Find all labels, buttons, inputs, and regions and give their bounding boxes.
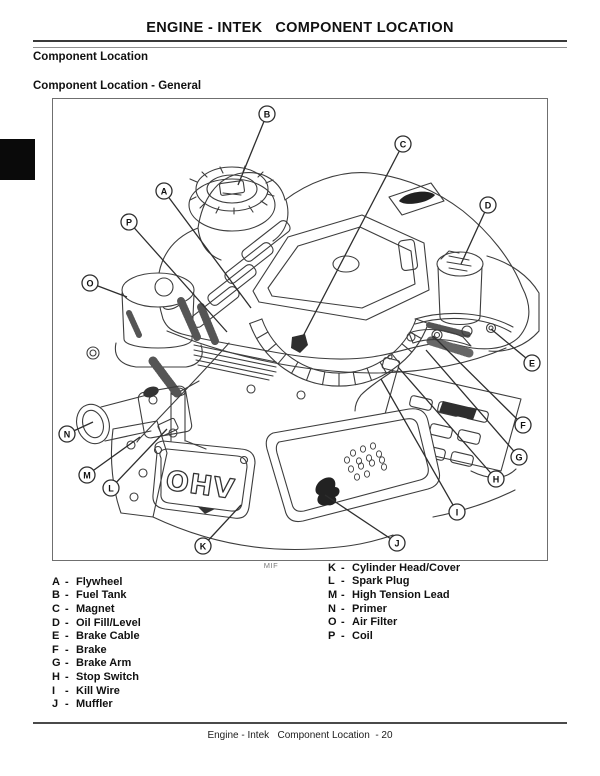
legend-item-N: N-Primer bbox=[328, 602, 460, 616]
legend-item-J: J-Muffler bbox=[52, 697, 141, 711]
svg-text:D: D bbox=[485, 200, 492, 210]
svg-text:O: O bbox=[86, 278, 93, 288]
svg-text:L: L bbox=[108, 483, 114, 493]
legend-right-column: K-Cylinder Head/CoverL-Spark PlugM-High … bbox=[328, 561, 460, 643]
legend-item-O: O-Air Filter bbox=[328, 615, 460, 629]
svg-text:J: J bbox=[394, 538, 399, 548]
svg-text:M: M bbox=[83, 470, 91, 480]
svg-text:P: P bbox=[126, 217, 132, 227]
svg-text:H: H bbox=[493, 474, 500, 484]
callout-M: M bbox=[79, 437, 140, 483]
svg-text:K: K bbox=[200, 541, 207, 551]
title-rule bbox=[33, 40, 567, 48]
legend-item-K: K-Cylinder Head/Cover bbox=[328, 561, 460, 575]
figure-box: OHV bbox=[52, 98, 548, 561]
footer-text: Engine - Intek Component Location - 20 bbox=[0, 730, 600, 741]
legend-left-column: A-FlywheelB-Fuel TankC-MagnetD-Oil Fill/… bbox=[52, 575, 141, 711]
svg-text:E: E bbox=[529, 358, 535, 368]
section-heading: Component Location bbox=[33, 51, 148, 63]
legend-item-M: M-High Tension Lead bbox=[328, 588, 460, 602]
legend-item-L: L-Spark Plug bbox=[328, 575, 460, 589]
subsection-heading: Component Location - General bbox=[33, 80, 201, 92]
callout-O: O bbox=[82, 275, 127, 297]
svg-text:G: G bbox=[515, 452, 522, 462]
legend-item-D: D-Oil Fill/Level bbox=[52, 616, 141, 630]
engine-diagram: OHV bbox=[53, 99, 547, 560]
legend-item-G: G-Brake Arm bbox=[52, 657, 141, 671]
cylinder-fins bbox=[153, 345, 276, 393]
legend-item-B: B-Fuel Tank bbox=[52, 589, 141, 603]
page-title: ENGINE - INTEK COMPONENT LOCATION bbox=[0, 20, 600, 36]
legend-item-E: E-Brake Cable bbox=[52, 629, 141, 643]
legend-item-H: H-Stop Switch bbox=[52, 670, 141, 684]
svg-text:C: C bbox=[400, 139, 407, 149]
legend-item-I: I-Kill Wire bbox=[52, 684, 141, 698]
svg-text:B: B bbox=[264, 109, 271, 119]
footer-rule bbox=[33, 722, 567, 724]
muffler bbox=[266, 409, 439, 522]
svg-text:I: I bbox=[456, 507, 459, 517]
svg-text:N: N bbox=[64, 429, 71, 439]
legend-item-A: A-Flywheel bbox=[52, 575, 141, 589]
legend-item-C: C-Magnet bbox=[52, 602, 141, 616]
callout-N: N bbox=[59, 422, 93, 442]
section-tab bbox=[0, 139, 35, 180]
legend-item-F: F-Brake bbox=[52, 643, 141, 657]
figure-caption: MIF bbox=[248, 561, 294, 570]
svg-text:F: F bbox=[520, 420, 526, 430]
svg-text:A: A bbox=[161, 186, 168, 196]
legend-item-P: P-Coil bbox=[328, 629, 460, 643]
